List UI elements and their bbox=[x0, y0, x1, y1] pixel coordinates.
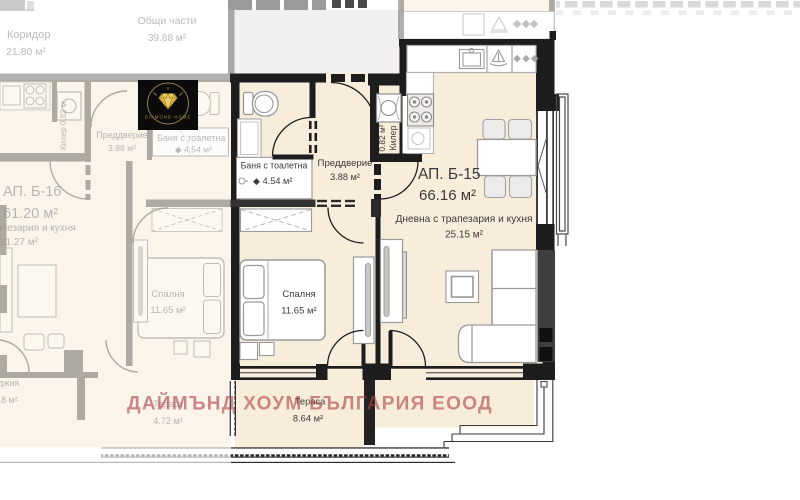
svg-text:◆ 4.54 м²: ◆ 4.54 м² bbox=[175, 145, 212, 155]
svg-text:66.16 м²: 66.16 м² bbox=[419, 187, 476, 204]
svg-text:0.82 м²: 0.82 м² bbox=[377, 124, 387, 151]
svg-text:21.80 м²: 21.80 м² bbox=[6, 46, 46, 58]
svg-text:3.88 м²: 3.88 м² bbox=[108, 143, 136, 153]
svg-text:11.65 м²: 11.65 м² bbox=[281, 306, 316, 317]
svg-text:◆ 4.54 м²: ◆ 4.54 м² bbox=[253, 176, 292, 186]
svg-text:Преддверие: Преддверие bbox=[96, 130, 148, 140]
svg-text:11.65 м²: 11.65 м² bbox=[150, 305, 185, 316]
svg-text:АП. Б-16: АП. Б-16 bbox=[3, 184, 61, 200]
svg-text:Дневна с трапезария и кухня: Дневна с трапезария и кухня bbox=[395, 214, 532, 225]
svg-text:Килер: Килер bbox=[388, 125, 398, 150]
svg-text:18 м²: 18 м² bbox=[0, 395, 18, 405]
svg-text:Килер 0.82 м: Килер 0.82 м bbox=[59, 102, 68, 150]
svg-text:61.20 м²: 61.20 м² bbox=[3, 206, 58, 222]
svg-text:Преддверие: Преддверие bbox=[318, 158, 373, 169]
svg-text:3.88 м²: 3.88 м² bbox=[330, 172, 360, 182]
svg-text:Спалня: Спалня bbox=[282, 289, 315, 300]
svg-text:4.72 м²: 4.72 м² bbox=[153, 416, 182, 426]
svg-text:АП. Б-15: АП. Б-15 bbox=[418, 166, 481, 183]
svg-text:DIAMOND HOME: DIAMOND HOME bbox=[145, 115, 192, 120]
svg-text:25.15 м²: 25.15 м² bbox=[445, 230, 484, 241]
svg-text:ДАЙМЪНД ХОУМ БЪЛГАРИЯ ЕООД: ДАЙМЪНД ХОУМ БЪЛГАРИЯ ЕООД bbox=[127, 393, 493, 415]
svg-text:трапезария и кухня: трапезария и кухня bbox=[0, 223, 76, 234]
svg-text:Общи части: Общи части bbox=[138, 15, 197, 27]
svg-text:39.88 м²: 39.88 м² bbox=[148, 33, 187, 44]
svg-text:Коридор: Коридор bbox=[7, 29, 50, 41]
svg-text:Баня с тоалетна: Баня с тоалетна bbox=[241, 161, 308, 171]
svg-text:Баня с тоалетна: Баня с тоалетна bbox=[157, 133, 225, 143]
svg-text:Спалня: Спалня bbox=[151, 289, 184, 300]
svg-text:8.64 м²: 8.64 м² bbox=[293, 414, 323, 424]
svg-text:джия: джия bbox=[0, 378, 19, 388]
svg-text:21.27 м²: 21.27 м² bbox=[0, 237, 39, 248]
